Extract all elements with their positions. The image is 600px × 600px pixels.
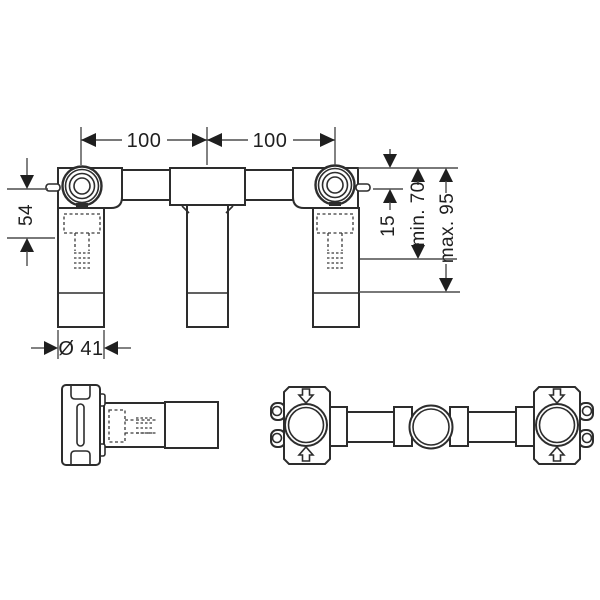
dim-label-54: 54 [16, 204, 37, 226]
right-pin [356, 184, 370, 191]
dim-label-100-left: 100 [127, 130, 162, 152]
installation-dimension-drawing: 100 100 54 15 min. 70 max. 95 [0, 0, 600, 600]
left-valve-face [63, 167, 102, 208]
flange-slot [77, 404, 84, 446]
rear-view [271, 387, 593, 464]
left-valve-mark [76, 203, 88, 207]
technical-drawing-page: 100 100 54 15 min. 70 max. 95 [0, 0, 600, 600]
right-housing [534, 387, 593, 464]
coupling-1 [330, 407, 347, 446]
center-connection-outer [410, 406, 453, 449]
connector-tube-right [245, 170, 293, 200]
dim-label-min-70: min. 70 [408, 181, 429, 246]
right-valve-face [316, 166, 355, 207]
dim-label-100-right: 100 [253, 130, 288, 152]
connector-tube-left [122, 170, 170, 200]
left-pin [46, 184, 60, 191]
side-view-tube [165, 402, 218, 448]
dimension-100-100: 100 100 [81, 127, 335, 165]
right-valve-mark [329, 202, 341, 206]
side-view [62, 385, 218, 465]
coupling-4 [516, 407, 534, 446]
right-valve-opening-outer [536, 404, 578, 446]
rear-tube-left [347, 412, 394, 442]
front-elevation-view [46, 166, 370, 328]
dim-label-diameter: Ø 41 [58, 338, 103, 360]
rear-tube-right [468, 412, 516, 442]
dim-label-15: 15 [378, 215, 399, 237]
center-block [170, 168, 245, 205]
center-tube [187, 205, 228, 327]
dimension-54: 54 [7, 158, 55, 266]
side-view-body [104, 403, 165, 447]
left-housing [271, 387, 330, 464]
left-valve-opening-outer [285, 404, 327, 446]
dimension-diameter-41: Ø 41 [31, 330, 131, 360]
dimension-15: 15 [373, 149, 403, 237]
dim-label-max-95: max. 95 [437, 193, 458, 263]
